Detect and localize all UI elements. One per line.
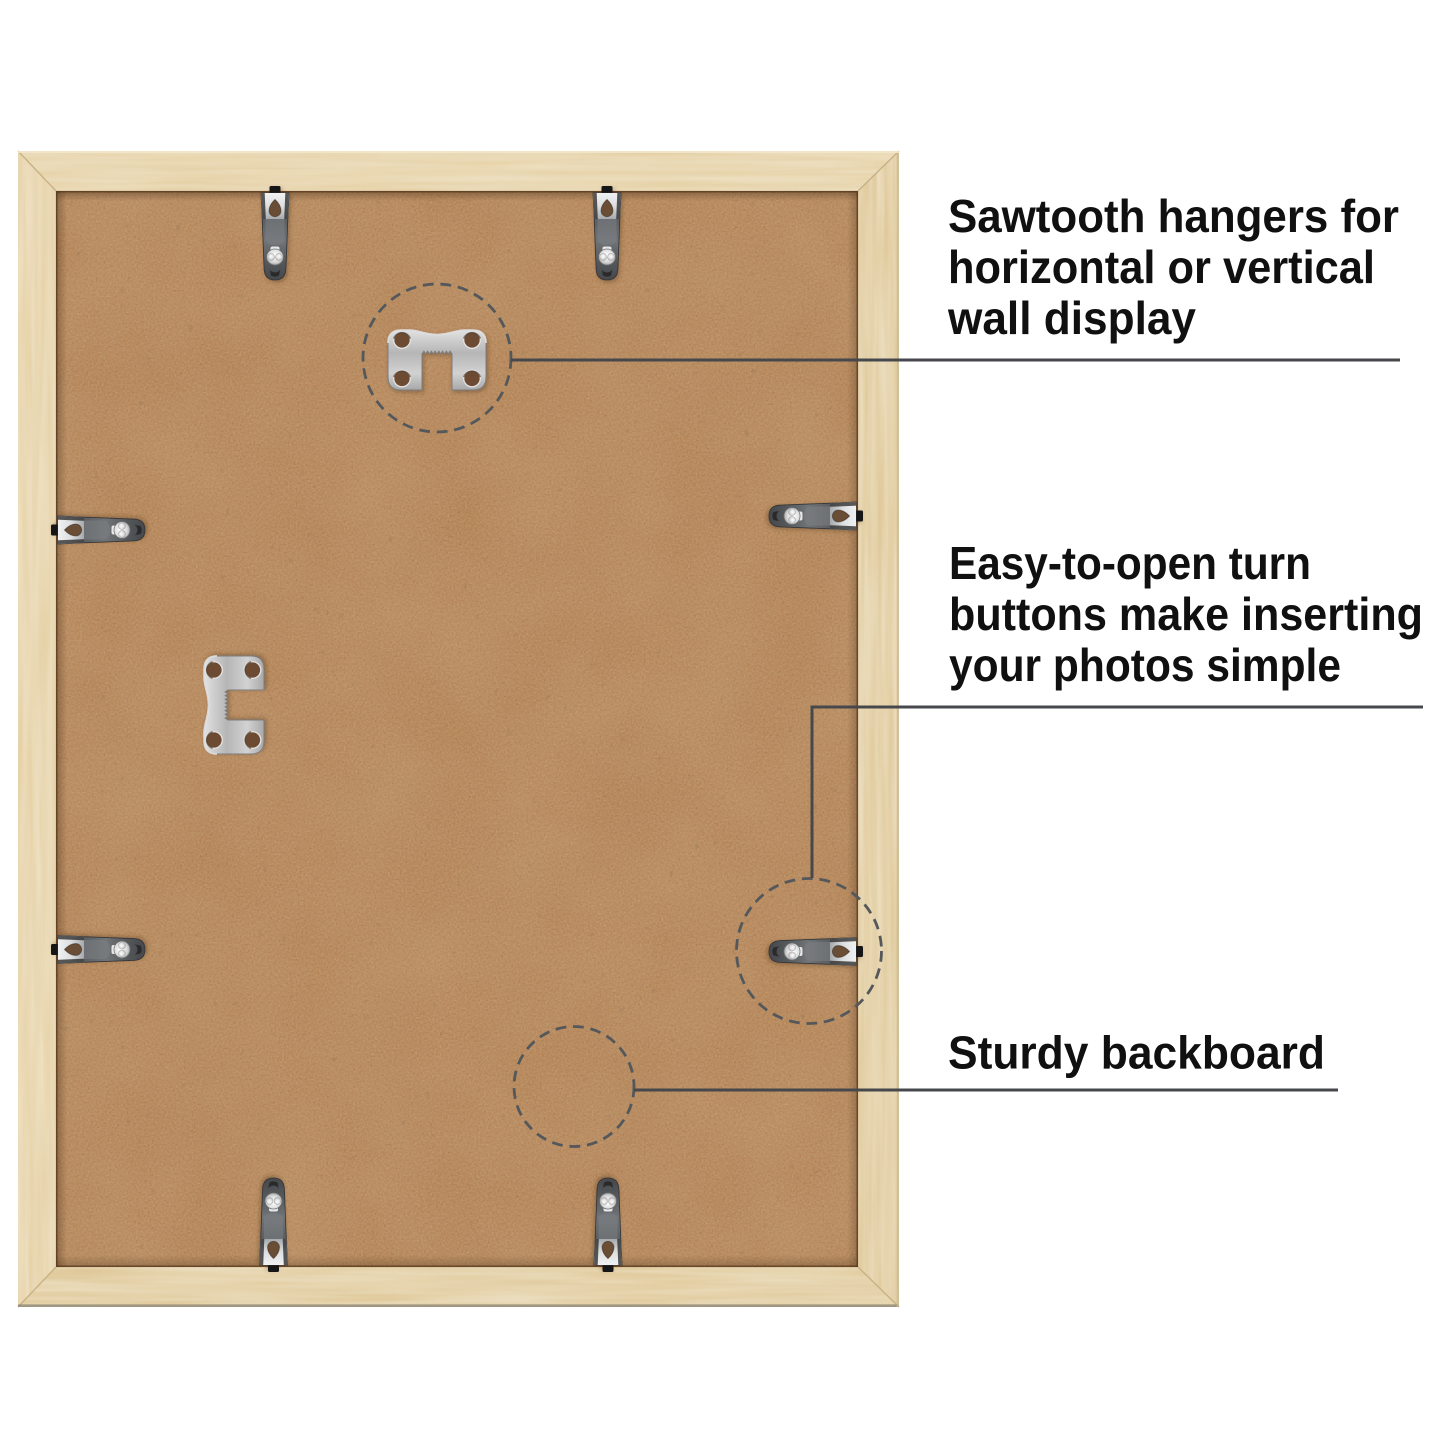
svg-text:horizontal or vertical: horizontal or vertical	[948, 241, 1375, 293]
svg-text:wall display: wall display	[947, 292, 1196, 344]
svg-text:Easy-to-open turn: Easy-to-open turn	[949, 537, 1311, 589]
svg-text:buttons make inserting: buttons make inserting	[949, 588, 1423, 640]
svg-text:Sawtooth hangers for: Sawtooth hangers for	[948, 190, 1399, 242]
svg-text:your photos simple: your photos simple	[949, 639, 1341, 691]
svg-text:Sturdy backboard: Sturdy backboard	[948, 1027, 1325, 1079]
